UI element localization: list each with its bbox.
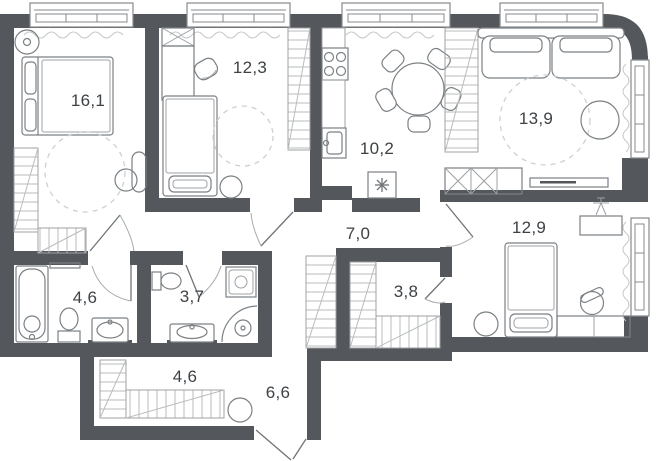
door-bedroom-3: [446, 204, 473, 246]
wardrobe-rail: [14, 148, 86, 253]
area-label-bedroom-3: 12,9: [512, 218, 546, 237]
window-kitchen: [342, 3, 450, 27]
bedroom-3-furniture: [474, 198, 630, 337]
pillow: [169, 176, 211, 192]
sofa: [478, 28, 624, 78]
rug: [45, 132, 125, 212]
hall-rail: [306, 256, 336, 348]
curtain-living-side: [623, 64, 629, 152]
door-walk-in-wardrobe: [425, 278, 445, 303]
bedroom-2-furniture: [162, 28, 310, 198]
door-bedroom-1: [90, 215, 134, 251]
kitchen-sink: [322, 128, 346, 158]
area-label-hallway: 7,0: [346, 224, 371, 243]
side-table: [581, 101, 619, 139]
area-label-bedroom-1: 16,1: [71, 91, 105, 110]
tv-console: [530, 178, 608, 187]
cabinet: [557, 316, 630, 337]
single-bed: [505, 243, 557, 337]
snowflake-icon: [375, 178, 389, 192]
walk-in-wardrobe-rails: [350, 262, 440, 348]
stool: [220, 176, 242, 198]
area-label-bathroom: 4,6: [73, 288, 98, 307]
chair: [192, 56, 220, 83]
door-bedroom-2: [251, 212, 293, 246]
door-bathroom: [92, 265, 131, 301]
plant-center: [24, 39, 31, 46]
kitchen-furniture: [322, 28, 478, 198]
entry-door: [256, 430, 306, 460]
stove: [322, 48, 348, 80]
curtain-bedroom-1: [24, 32, 123, 38]
pillow: [510, 314, 552, 332]
single-bed: [163, 96, 217, 196]
curtain-bedroom-2: [170, 32, 280, 38]
area-label-bedroom-2: 12,3: [233, 58, 267, 77]
shower: [222, 306, 257, 342]
area-label-kitchen: 10,2: [360, 139, 394, 158]
area-label-living-room: 13,9: [519, 109, 553, 128]
rug: [213, 106, 273, 166]
pillow: [25, 62, 36, 94]
sink: [88, 318, 132, 344]
tv: [540, 181, 576, 184]
counter: [322, 28, 345, 48]
toilet: [58, 308, 80, 342]
washing-machine: [226, 267, 256, 297]
area-label-entrance-hall: 6,6: [266, 383, 291, 402]
fridge: [368, 172, 396, 198]
desk: [580, 198, 622, 235]
counter: [322, 80, 345, 128]
window-bedroom-1: [30, 3, 133, 27]
curtain-bedroom-3-side: [623, 222, 629, 321]
sink: [167, 324, 217, 344]
area-label-toilet: 3,7: [180, 287, 205, 306]
floor-plan: 16,1 12,3 10,2 13,9 7,0 12,9 4,6 3,7 3,8…: [0, 0, 657, 461]
tall-wardrobe-rail: [288, 28, 310, 150]
bathtub: [16, 266, 48, 342]
area-label-walk-in-wardrobe: 3,8: [394, 282, 419, 301]
pouf: [474, 312, 498, 336]
chair: [579, 286, 604, 314]
window-living-room: [500, 3, 603, 27]
curtain-kitchen: [346, 32, 434, 38]
stool: [115, 169, 137, 191]
stool: [228, 398, 252, 422]
wardrobe: [162, 28, 194, 100]
pillow: [25, 99, 36, 131]
area-label-hall-wardrobe: 4,6: [173, 367, 198, 386]
bedroom-1-furniture: [14, 30, 146, 253]
tall-cabinet-rail: [445, 28, 478, 152]
chair: [408, 116, 430, 132]
toilet-fixtures: [152, 267, 257, 344]
window-living-room-side: [631, 60, 649, 158]
plant: [15, 30, 39, 54]
window-bedroom-2: [187, 3, 290, 27]
toilet: [152, 272, 181, 290]
window-bedroom-3-side: [631, 218, 649, 316]
